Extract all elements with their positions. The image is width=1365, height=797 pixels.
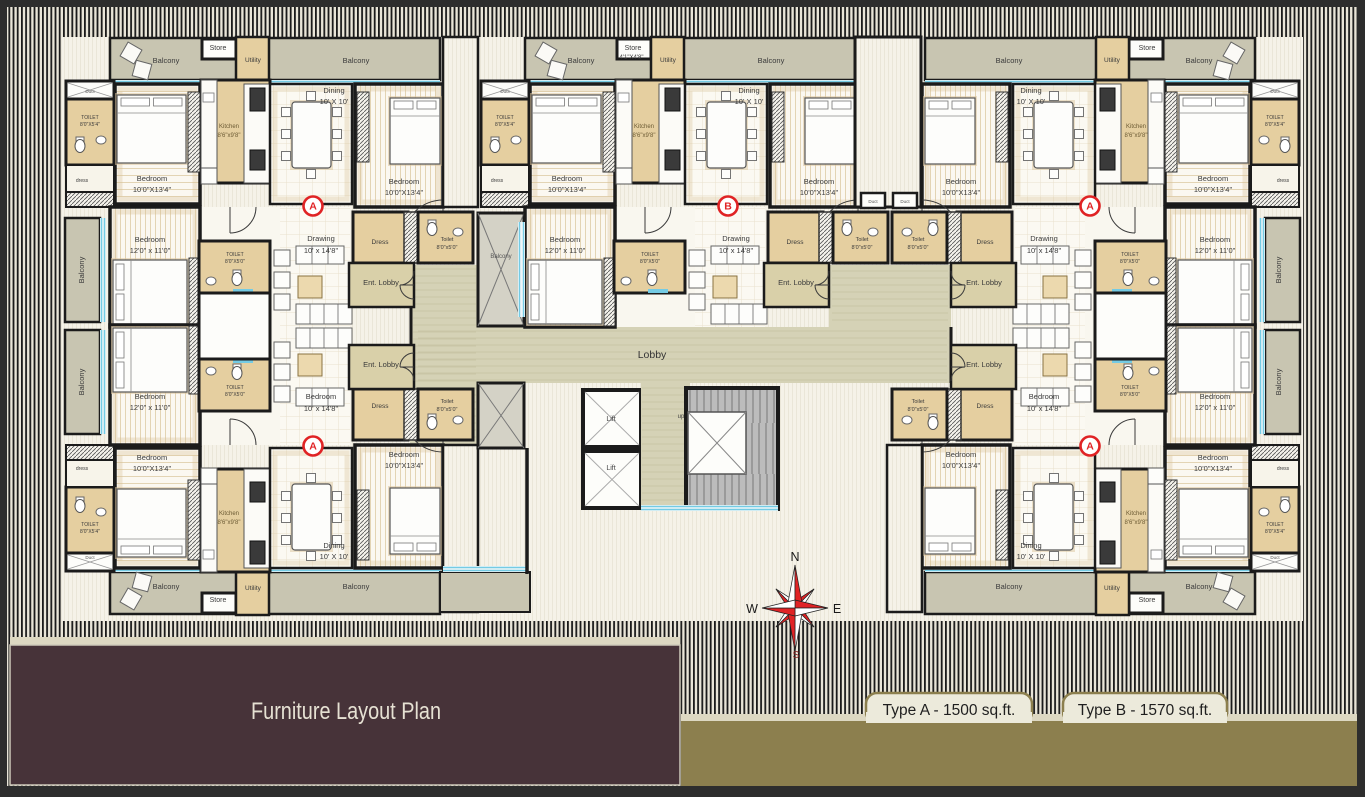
svg-text:Balcony: Balcony [343, 56, 370, 65]
svg-text:Bedroom: Bedroom [306, 392, 336, 401]
svg-text:Store: Store [210, 597, 227, 604]
svg-text:Utility: Utility [1104, 585, 1121, 592]
svg-text:Drawing: Drawing [307, 234, 335, 243]
svg-text:10' X 10': 10' X 10' [320, 552, 349, 561]
svg-text:8'0"x5'0": 8'0"x5'0" [437, 407, 458, 413]
svg-text:8'0"x5'0": 8'0"x5'0" [437, 245, 458, 251]
svg-text:Toilet: Toilet [856, 237, 869, 243]
svg-text:8'6"x9'8": 8'6"x9'8" [1125, 133, 1148, 139]
svg-text:Balcony: Balcony [77, 368, 86, 395]
svg-text:dress: dress [1277, 466, 1290, 472]
svg-text:A: A [1086, 441, 1094, 453]
svg-text:Ent. Lobby: Ent. Lobby [363, 360, 399, 369]
svg-text:12'0" x 11'0": 12'0" x 11'0" [130, 403, 171, 412]
svg-text:TOILET: TOILET [1266, 522, 1283, 528]
svg-text:10'0"X13'4": 10'0"X13'4" [800, 188, 839, 197]
svg-text:10' x 14'8": 10' x 14'8" [1027, 246, 1062, 255]
svg-text:10' X 10': 10' X 10' [1017, 97, 1046, 106]
svg-text:Kitchen: Kitchen [634, 124, 654, 130]
svg-text:Balcony: Balcony [153, 582, 180, 591]
svg-text:8'0"X5'4": 8'0"X5'4" [80, 122, 100, 128]
svg-text:Bedroom: Bedroom [1198, 174, 1228, 183]
svg-text:TOILET: TOILET [1121, 252, 1138, 258]
svg-text:10'0"X13'4": 10'0"X13'4" [942, 461, 981, 470]
svg-text:Kitchen: Kitchen [1126, 124, 1146, 130]
svg-text:Lobby: Lobby [638, 349, 667, 361]
svg-text:Utility: Utility [1104, 57, 1121, 64]
svg-text:dress: dress [491, 178, 504, 184]
svg-text:W: W [746, 602, 758, 616]
svg-text:Bedroom: Bedroom [389, 450, 419, 459]
svg-text:Bedroom: Bedroom [946, 450, 976, 459]
svg-text:TOILET: TOILET [226, 385, 243, 391]
svg-text:10'0"X13'4": 10'0"X13'4" [548, 185, 587, 194]
svg-text:Balcony: Balcony [343, 582, 370, 591]
svg-text:Dress: Dress [372, 403, 390, 410]
svg-text:Type A - 1500 sq.ft.: Type A - 1500 sq.ft. [883, 702, 1016, 719]
svg-text:Bedroom: Bedroom [137, 174, 167, 183]
svg-text:Dress: Dress [787, 239, 805, 246]
svg-text:8'0"X5'4": 8'0"X5'4" [1265, 529, 1285, 535]
svg-text:Bedroom: Bedroom [137, 453, 167, 462]
svg-text:TOILET: TOILET [496, 115, 513, 121]
svg-text:Kitchen: Kitchen [1126, 511, 1146, 517]
svg-text:Duct: Duct [500, 89, 510, 94]
svg-text:Balcony: Balcony [996, 56, 1023, 65]
svg-text:Balcony: Balcony [1274, 256, 1283, 283]
svg-text:Toilet: Toilet [912, 399, 925, 405]
svg-text:TOILET: TOILET [641, 252, 658, 258]
svg-text:dress: dress [76, 466, 89, 472]
svg-text:Bedroom: Bedroom [389, 177, 419, 186]
svg-text:10'0"X13'4": 10'0"X13'4" [385, 461, 424, 470]
svg-text:8'6"x9'8": 8'6"x9'8" [218, 133, 241, 139]
svg-text:Store: Store [1139, 45, 1156, 52]
svg-text:Dining: Dining [323, 86, 344, 95]
svg-text:Utility: Utility [660, 57, 677, 64]
svg-text:4'1"X4'8": 4'1"X4'8" [620, 55, 644, 61]
svg-text:Lift: Lift [606, 465, 615, 472]
svg-text:12'0" x 11'0": 12'0" x 11'0" [130, 246, 171, 255]
svg-text:Balcony: Balcony [1186, 582, 1213, 591]
svg-text:8'0"X5'0": 8'0"X5'0" [640, 259, 660, 265]
svg-text:10'0"X13'4": 10'0"X13'4" [942, 188, 981, 197]
svg-text:Store: Store [625, 45, 642, 52]
svg-text:Kitchen: Kitchen [219, 511, 239, 517]
svg-text:Store: Store [1139, 597, 1156, 604]
svg-text:8'0"x5'0": 8'0"x5'0" [908, 407, 929, 413]
svg-text:N: N [790, 550, 799, 564]
svg-text:up: up [678, 414, 685, 420]
svg-text:10'0"X13'4": 10'0"X13'4" [1194, 464, 1233, 473]
svg-text:Bedroom: Bedroom [135, 392, 165, 401]
svg-text:10' x 14'8": 10' x 14'8" [719, 246, 754, 255]
svg-text:10' x 14'8": 10' x 14'8" [1027, 404, 1062, 413]
svg-text:A: A [1086, 201, 1094, 213]
svg-text:Dining: Dining [323, 541, 344, 550]
svg-text:Duct: Duct [868, 199, 878, 204]
svg-text:Store: Store [210, 45, 227, 52]
svg-text:Bedroom: Bedroom [552, 174, 582, 183]
svg-text:8'0"X5'4": 8'0"X5'4" [1265, 122, 1285, 128]
svg-text:TOILET: TOILET [1121, 385, 1138, 391]
svg-text:Balcony: Balcony [1274, 368, 1283, 395]
svg-text:10' X 10': 10' X 10' [735, 97, 764, 106]
svg-text:Toilet: Toilet [912, 237, 925, 243]
svg-text:8'0"X5'0": 8'0"X5'0" [225, 392, 245, 398]
svg-text:Duct: Duct [900, 199, 910, 204]
svg-text:Drawing: Drawing [1030, 234, 1058, 243]
svg-text:8'0"x5'0": 8'0"x5'0" [852, 245, 873, 251]
svg-text:10'0"X13'4": 10'0"X13'4" [385, 188, 424, 197]
svg-text:Balcony: Balcony [153, 56, 180, 65]
svg-text:Balcony: Balcony [568, 56, 595, 65]
svg-text:Balcony: Balcony [77, 256, 86, 283]
svg-text:Bedroom: Bedroom [804, 177, 834, 186]
svg-text:Bedroom: Bedroom [1200, 235, 1230, 244]
svg-text:Bedroom: Bedroom [1200, 392, 1230, 401]
svg-text:TOILET: TOILET [1266, 115, 1283, 121]
svg-text:8'0"X5'4": 8'0"X5'4" [495, 122, 515, 128]
svg-text:Bedroom: Bedroom [550, 235, 580, 244]
svg-text:8'6"x9'8": 8'6"x9'8" [633, 133, 656, 139]
svg-text:Dress: Dress [977, 403, 995, 410]
svg-text:8'0"X5'0": 8'0"X5'0" [1120, 392, 1140, 398]
svg-text:E: E [833, 602, 841, 616]
svg-text:10' X 10': 10' X 10' [1017, 552, 1046, 561]
svg-text:8'0"X5'0": 8'0"X5'0" [1120, 259, 1140, 265]
svg-text:8'0"x5'0": 8'0"x5'0" [908, 245, 929, 251]
svg-text:Ent. Lobby: Ent. Lobby [363, 278, 399, 287]
svg-text:Duct: Duct [85, 89, 95, 94]
svg-text:Dining: Dining [738, 86, 759, 95]
svg-text:dress: dress [76, 178, 89, 184]
svg-text:Bedroom: Bedroom [135, 235, 165, 244]
svg-text:A: A [309, 441, 317, 453]
svg-text:10'0"X13'4": 10'0"X13'4" [133, 185, 172, 194]
svg-text:Drawing: Drawing [722, 234, 750, 243]
svg-text:Balcony: Balcony [996, 582, 1023, 591]
svg-text:Furniture Layout Plan: Furniture Layout Plan [251, 698, 441, 725]
svg-text:TOILET: TOILET [81, 115, 98, 121]
svg-text:Duct: Duct [1270, 555, 1280, 560]
svg-text:Bedroom: Bedroom [1198, 453, 1228, 462]
svg-text:A: A [309, 201, 317, 213]
svg-text:Dress: Dress [372, 239, 390, 246]
svg-text:B: B [724, 201, 732, 213]
svg-text:Toilet: Toilet [441, 399, 454, 405]
svg-text:12'0" x 11'0": 12'0" x 11'0" [545, 246, 586, 255]
svg-text:10'0"X13'4": 10'0"X13'4" [1194, 185, 1233, 194]
svg-text:Bedroom: Bedroom [946, 177, 976, 186]
svg-text:S: S [793, 650, 800, 661]
svg-text:Lift: Lift [606, 416, 615, 423]
svg-text:10'0"X13'4": 10'0"X13'4" [133, 464, 172, 473]
svg-text:Duct: Duct [1270, 89, 1280, 94]
svg-text:8'0"X5'4": 8'0"X5'4" [80, 529, 100, 535]
svg-text:8'6"x9'8": 8'6"x9'8" [218, 520, 241, 526]
svg-text:dress: dress [1277, 178, 1290, 184]
svg-text:Balcony: Balcony [758, 56, 785, 65]
svg-text:12'0" x 11'0": 12'0" x 11'0" [1195, 403, 1236, 412]
svg-text:Dress: Dress [977, 239, 995, 246]
svg-text:Balcony: Balcony [490, 254, 511, 260]
svg-text:Dining: Dining [1020, 86, 1041, 95]
svg-text:Toilet: Toilet [441, 237, 454, 243]
svg-text:Type B - 1570 sq.ft.: Type B - 1570 sq.ft. [1078, 702, 1212, 719]
svg-text:Utility: Utility [245, 57, 262, 64]
svg-text:Bedroom: Bedroom [1029, 392, 1059, 401]
svg-text:Balcony: Balcony [1186, 56, 1213, 65]
svg-text:Ent. Lobby: Ent. Lobby [966, 278, 1002, 287]
svg-text:8'6"x9'8": 8'6"x9'8" [1125, 520, 1148, 526]
svg-text:10' x 14'8": 10' x 14'8" [304, 404, 339, 413]
svg-text:10' x 14'8": 10' x 14'8" [304, 246, 339, 255]
svg-text:Kitchen: Kitchen [219, 124, 239, 130]
svg-text:TOILET: TOILET [226, 252, 243, 258]
svg-text:Ent. Lobby: Ent. Lobby [778, 278, 814, 287]
svg-text:TOILET: TOILET [81, 522, 98, 528]
svg-text:Ent. Lobby: Ent. Lobby [966, 360, 1002, 369]
svg-text:Duct: Duct [85, 555, 95, 560]
svg-text:10' X 10': 10' X 10' [320, 97, 349, 106]
svg-text:12'0" x 11'0": 12'0" x 11'0" [1195, 246, 1236, 255]
svg-text:8'0"X5'0": 8'0"X5'0" [225, 259, 245, 265]
svg-text:Dining: Dining [1020, 541, 1041, 550]
svg-text:Utility: Utility [245, 585, 262, 592]
